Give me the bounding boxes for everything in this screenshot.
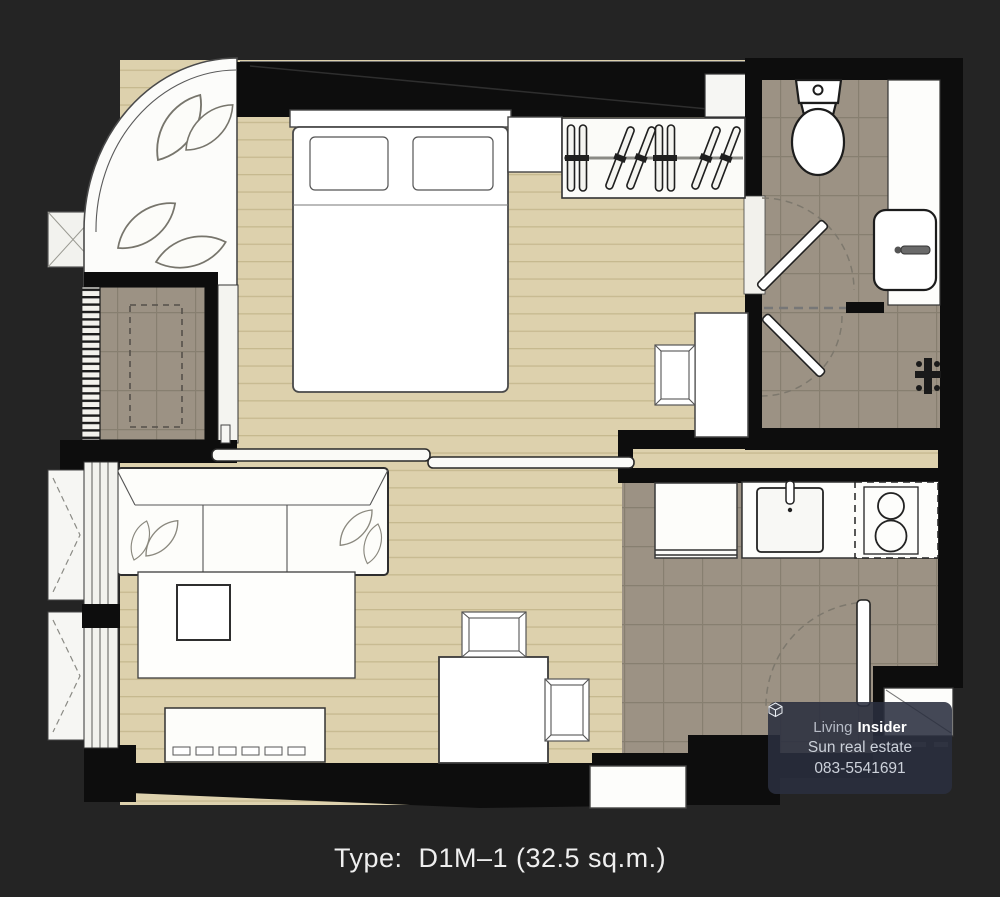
left-windows xyxy=(48,462,120,748)
right-wall xyxy=(938,58,963,688)
ac-ledge xyxy=(82,287,205,440)
sofa xyxy=(117,468,388,575)
watermark-agent: Sun real estate xyxy=(808,739,912,757)
dining-chair-right xyxy=(545,679,589,741)
bathroom xyxy=(744,80,941,428)
balcony-bay xyxy=(48,58,242,287)
pillow-right xyxy=(413,137,493,190)
desk-chair xyxy=(655,345,695,405)
side-cabinet xyxy=(218,285,238,443)
brand-suffix: Insider xyxy=(858,719,907,736)
exterior-planter xyxy=(590,766,686,808)
double-bed xyxy=(290,110,511,392)
stove-2-burner xyxy=(855,482,938,558)
window-mullion xyxy=(82,604,120,628)
sliding-panel-2 xyxy=(428,457,634,468)
shaft-box xyxy=(705,74,746,117)
dining-chair-top xyxy=(462,612,526,657)
wardrobe xyxy=(562,118,745,198)
plan-title: Type: D1M–1 (32.5 sq.m.) xyxy=(0,843,1000,874)
pillow-left xyxy=(310,137,388,190)
watermark-phone: 083-5541691 xyxy=(814,760,905,778)
desk xyxy=(695,313,748,437)
sliding-panel-1 xyxy=(212,449,430,461)
dining-table xyxy=(439,657,548,763)
coffee-table xyxy=(177,585,230,640)
refrigerator xyxy=(655,483,737,558)
watermark: LivingInsider Sun real estate 083-554169… xyxy=(768,702,952,794)
rug xyxy=(138,572,355,678)
brand-prefix: Living xyxy=(813,719,852,736)
tv-console xyxy=(165,708,325,762)
shower-valve-icon xyxy=(915,358,941,394)
headboard xyxy=(290,110,511,127)
kitchen-sink xyxy=(757,481,823,552)
louver-vent xyxy=(82,287,102,440)
corridor-strip xyxy=(633,449,940,468)
floor-plan-image: LivingInsider Sun real estate 083-554169… xyxy=(0,0,1000,897)
toilet xyxy=(792,80,844,175)
watermark-brand: LivingInsider xyxy=(813,719,906,736)
living-insider-cube-icon xyxy=(768,702,783,718)
nightstand xyxy=(508,117,562,172)
